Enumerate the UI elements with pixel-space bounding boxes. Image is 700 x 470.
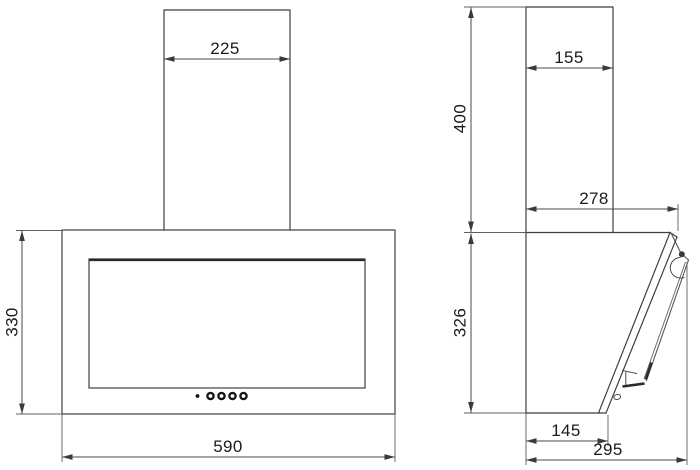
control-button	[240, 393, 246, 399]
dimension-top-depth: 278	[526, 189, 678, 231]
dimension-overall-depth: 295	[526, 262, 687, 465]
side-body-outline	[464, 233, 677, 414]
control-buttons	[196, 393, 247, 399]
open-panel-tip	[685, 257, 689, 261]
dimension-chimney-width: 225	[164, 39, 290, 59]
open-panel-inner-edge	[644, 262, 686, 379]
dimension-value: 278	[579, 189, 609, 208]
control-button	[218, 393, 224, 399]
control-button	[229, 393, 235, 399]
mounting-bracket	[613, 371, 644, 401]
indicator-dot	[196, 394, 200, 398]
dimension-value: 590	[213, 437, 243, 456]
dimension-chimney-height: 400	[451, 8, 472, 233]
open-glass-panel	[644, 234, 689, 381]
front-body-outline	[62, 230, 395, 414]
dimension-chimney-depth: 155	[526, 48, 613, 68]
dimension-value: 400	[451, 104, 470, 134]
hinge-swing-arc	[670, 258, 684, 279]
dimension-body-height-side: 326	[451, 234, 472, 413]
front-slant-top-cap	[670, 233, 677, 238]
front-view: 225 330 590	[3, 10, 396, 462]
dimension-value: 295	[593, 440, 623, 459]
dimension-value: 155	[554, 48, 584, 67]
side-view: 155 400 278 326 1	[451, 7, 689, 465]
dimension-value: 225	[210, 39, 240, 58]
dimension-body-width: 590	[62, 414, 395, 462]
panel-clip	[613, 394, 621, 400]
front-glass-panel-outline	[89, 259, 365, 388]
dimension-value: 326	[451, 308, 470, 338]
dimension-value: 145	[551, 421, 581, 440]
technical-drawing-canvas: 225 330 590	[0, 0, 700, 470]
hinge-pivot	[679, 251, 685, 257]
bracket-arm	[623, 371, 637, 386]
control-button	[207, 393, 213, 399]
hood-dimension-drawing: 225 330 590	[0, 0, 700, 470]
dimension-body-height-front: 330	[3, 231, 63, 415]
dimension-value: 330	[3, 307, 22, 337]
